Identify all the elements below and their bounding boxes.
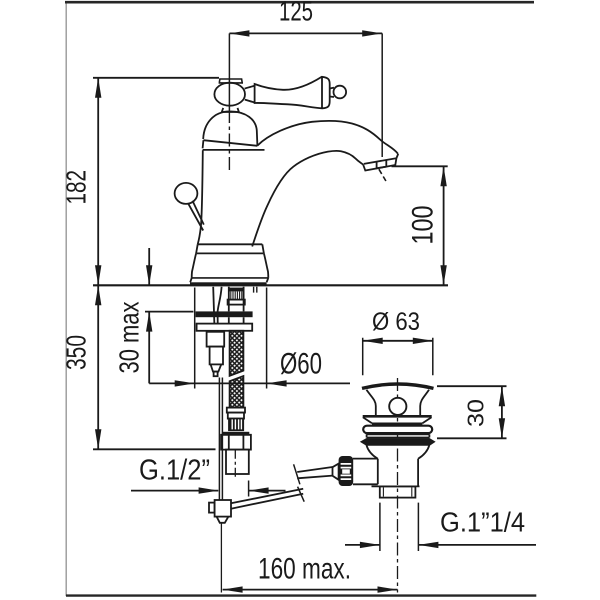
svg-text:182: 182 [61,170,92,205]
svg-text:160 max.: 160 max. [258,553,351,586]
svg-text:100: 100 [407,206,440,245]
svg-text:125: 125 [279,0,313,27]
svg-text:350: 350 [61,335,92,370]
svg-text:30: 30 [463,399,489,427]
svg-text:G.1”1/4: G.1”1/4 [440,507,525,538]
svg-text:G.1/2”: G.1/2” [139,455,210,487]
svg-text:Ø 63: Ø 63 [372,308,420,336]
svg-text:30 max: 30 max [114,301,145,373]
svg-text:Ø60: Ø60 [280,348,322,381]
